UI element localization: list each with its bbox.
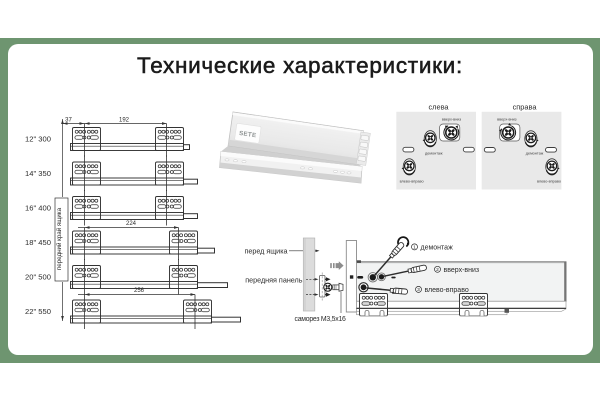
svg-text:саморез М3,5х16: саморез М3,5х16 <box>295 316 347 323</box>
svg-text:демонтаж: демонтаж <box>421 244 454 251</box>
svg-text:вверх-вниз: вверх-вниз <box>444 267 480 274</box>
svg-text:передняя панель: передняя панель <box>245 275 302 284</box>
svg-text:влево-вправо: влево-вправо <box>425 287 469 294</box>
svg-text:3: 3 <box>417 287 420 293</box>
svg-text:вверх-вниз: вверх-вниз <box>497 118 517 122</box>
svg-text:перед ящика: перед ящика <box>244 246 287 255</box>
svg-text:справа: справа <box>513 103 538 112</box>
svg-text:20" 500: 20" 500 <box>25 273 51 282</box>
svg-text:2: 2 <box>436 267 439 273</box>
svg-text:37: 37 <box>65 118 72 124</box>
svg-text:вверх-вниз: вверх-вниз <box>442 118 462 122</box>
svg-text:22" 550: 22" 550 <box>25 307 51 316</box>
svg-text:демонтаж: демонтаж <box>526 151 544 155</box>
svg-text:передний край ящика: передний край ящика <box>56 207 63 270</box>
svg-text:слева: слева <box>428 103 449 112</box>
svg-text:14" 350: 14" 350 <box>25 169 51 178</box>
svg-text:12" 300: 12" 300 <box>25 135 51 144</box>
svg-text:1: 1 <box>413 245 416 251</box>
svg-text:192: 192 <box>119 118 130 124</box>
svg-text:18" 450: 18" 450 <box>25 238 51 247</box>
svg-text:демонтаж: демонтаж <box>425 151 443 155</box>
svg-text:256: 256 <box>134 288 145 294</box>
svg-text:влево-вправо: влево-вправо <box>400 179 424 183</box>
svg-text:влево-вправо: влево-вправо <box>537 179 561 183</box>
svg-text:224: 224 <box>126 221 137 227</box>
svg-text:16" 400: 16" 400 <box>25 204 51 213</box>
